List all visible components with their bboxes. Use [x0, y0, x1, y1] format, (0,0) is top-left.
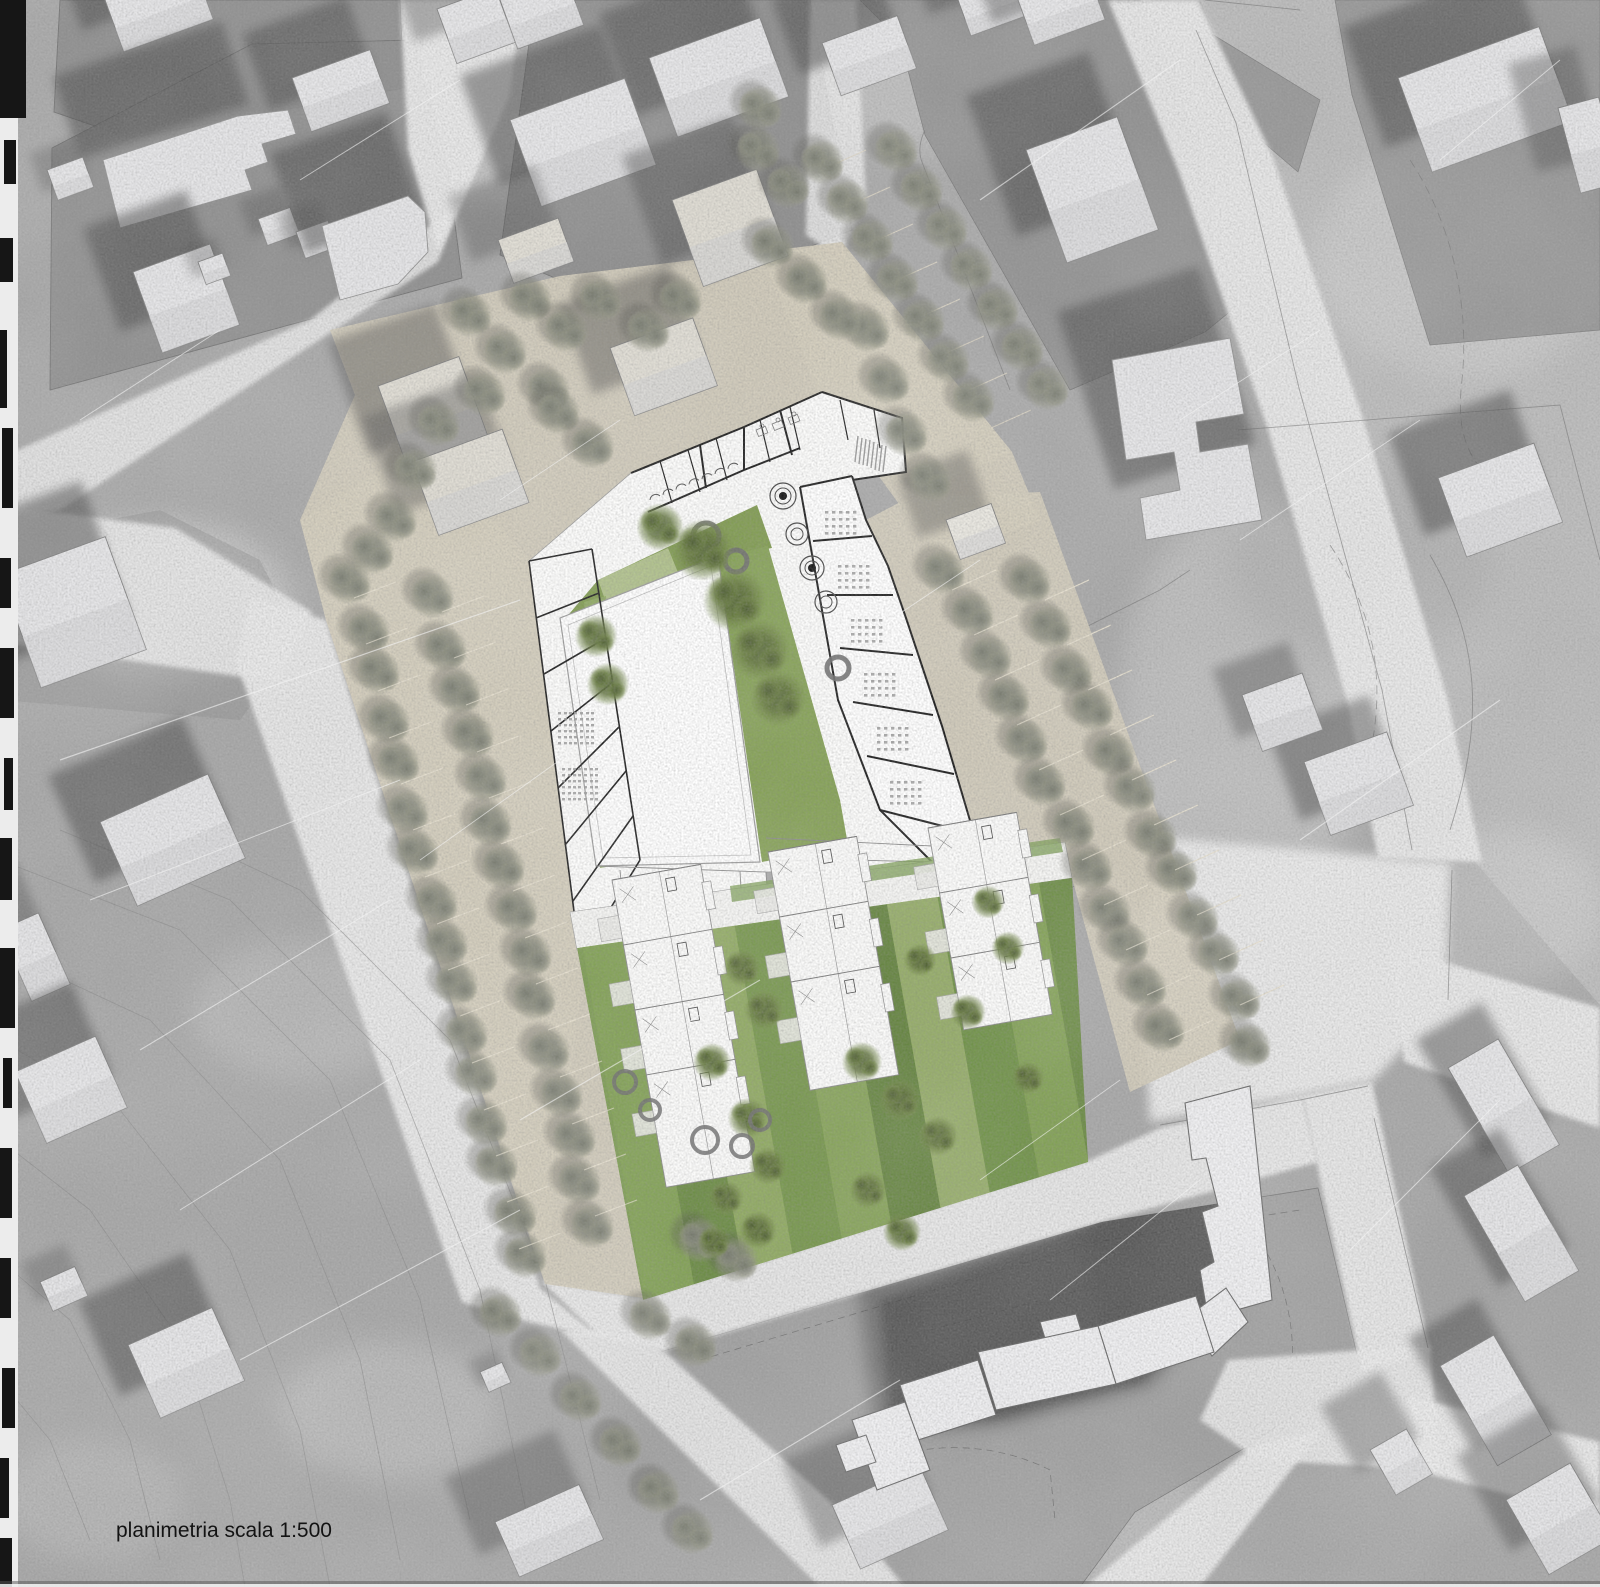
svg-text:planimetria scala 1:500: planimetria scala 1:500: [116, 1519, 332, 1542]
